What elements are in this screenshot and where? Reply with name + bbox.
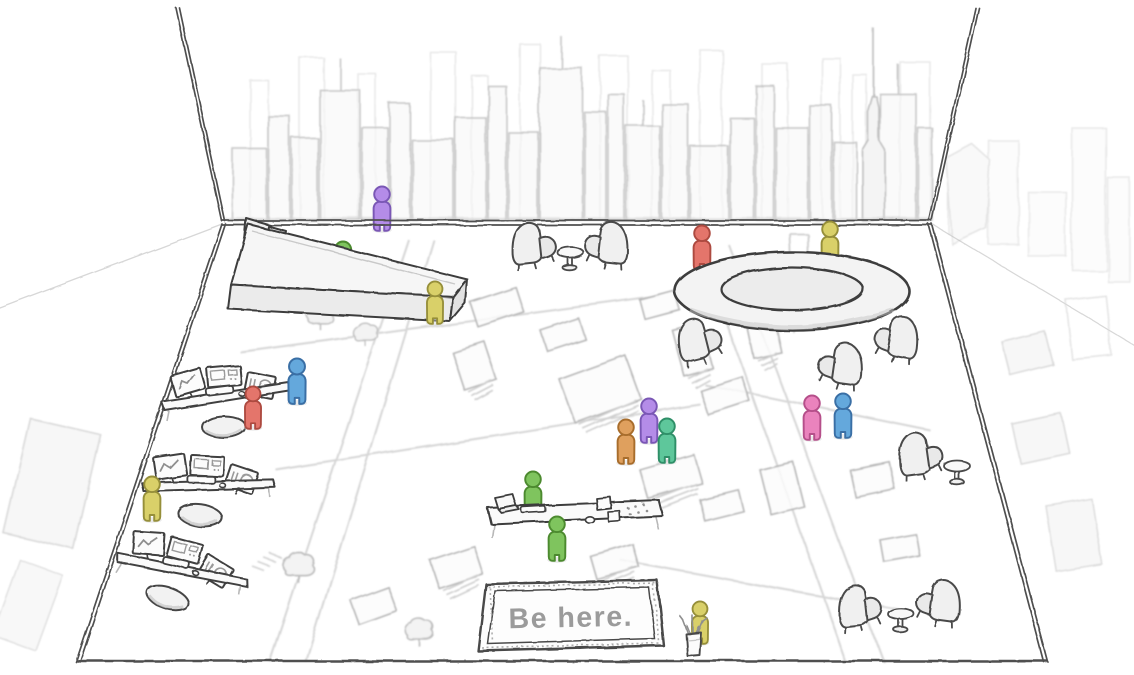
- left-wall-base: [0, 224, 222, 308]
- side-table-icon: [888, 609, 914, 633]
- armchair-icon: [914, 577, 963, 629]
- sign-text: Be here.: [508, 601, 633, 636]
- person-red-workstation-1: [245, 386, 261, 428]
- workstation-desk-2: [137, 446, 278, 536]
- ring-table-area: [673, 252, 970, 633]
- workstation-desk-1: [162, 365, 295, 438]
- box-icon: [596, 497, 611, 510]
- armchair-icon: [816, 340, 865, 392]
- notepad-icon: [608, 511, 621, 522]
- person-teal-group: [659, 419, 676, 463]
- skyline-right-of-glass: [946, 128, 1130, 282]
- person-blue-pair: [835, 394, 852, 438]
- armchair-icon: [836, 582, 884, 633]
- keyboard-icon: [521, 506, 545, 513]
- tree-icon: [112, 420, 140, 447]
- person-pink-pair: [804, 396, 821, 440]
- tree-icon: [406, 620, 434, 647]
- collaboration-desk: [487, 494, 663, 539]
- tree-icon: [283, 552, 314, 582]
- crosswalk: [250, 551, 284, 574]
- city-skyline: [224, 28, 1130, 282]
- person-blue-workstation-1: [288, 359, 305, 404]
- person-orange-group: [618, 420, 635, 464]
- cup-icon: [586, 517, 595, 523]
- laptop-icon: [494, 494, 519, 513]
- person-yellow-workstation-2: [144, 477, 161, 521]
- left-wall-edge: [176, 8, 225, 221]
- side-table-icon: [944, 461, 970, 485]
- ring-table-inner: [721, 268, 863, 311]
- person-purple-group: [641, 399, 658, 443]
- tree-icon: [136, 354, 164, 381]
- armchair-icon: [582, 219, 630, 270]
- person-yellow-reception-end: [427, 281, 443, 323]
- side-table-icon: [557, 247, 583, 271]
- window-lounge-nook: [510, 219, 631, 271]
- armchair-icon: [510, 220, 558, 271]
- person-green-collab-desk-front: [549, 517, 566, 561]
- office-over-city-illustration: Be here.: [0, 0, 1134, 675]
- armchair-icon: [896, 430, 945, 482]
- armchair-icon: [871, 312, 922, 365]
- workstation-desk-3: [105, 519, 255, 633]
